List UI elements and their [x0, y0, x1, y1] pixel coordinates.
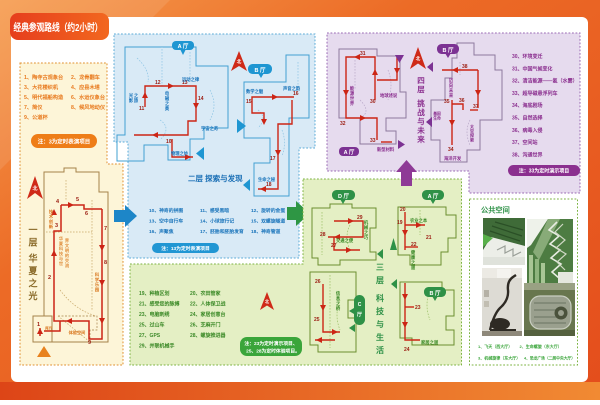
svg-text:三层科技与生活: 三层科技与生活 — [375, 263, 385, 355]
svg-text:25、过山车: 25、过山车 — [139, 322, 165, 329]
svg-text:12: 12 — [155, 80, 161, 86]
svg-text:24、家居创意台: 24、家居创意台 — [190, 311, 226, 318]
svg-text:16: 16 — [293, 91, 299, 97]
svg-text:26: 26 — [315, 279, 321, 285]
svg-text:13、空中自行车: 13、空中自行车 — [149, 218, 183, 225]
svg-text:12、旋转的金蛋: 12、旋转的金蛋 — [251, 207, 285, 214]
svg-text:11、感受黑暗: 11、感受黑暗 — [200, 207, 229, 214]
svg-text:14: 14 — [198, 96, 204, 102]
svg-text:1、陶寺古观象台: 1、陶寺古观象台 — [24, 73, 63, 81]
svg-text:17、胚胎和胚胎发育: 17、胚胎和胚胎发育 — [200, 228, 244, 235]
svg-text:2、龙骨翻车: 2、龙骨翻车 — [71, 73, 100, 81]
svg-text:8: 8 — [104, 260, 107, 266]
svg-text:1: 1 — [37, 322, 40, 328]
svg-text:四层挑战与未来: 四层挑战与未来 — [416, 76, 425, 144]
svg-text:4、应县木塔: 4、应县木塔 — [71, 83, 101, 91]
svg-text:公共空间: 公共空间 — [481, 206, 510, 215]
svg-text:物理之妙: 物理之妙 — [171, 150, 189, 157]
svg-text:34、海底剧场: 34、海底剧场 — [512, 102, 543, 109]
svg-text:20: 20 — [400, 207, 406, 213]
svg-text:33: 33 — [370, 138, 376, 144]
svg-text:声音之韵: 声音之韵 — [282, 85, 301, 92]
svg-text:2: 2 — [48, 275, 51, 281]
svg-text:A 厅: A 厅 — [428, 192, 439, 200]
svg-text:16、声聚焦: 16、声聚焦 — [149, 228, 174, 235]
svg-text:35: 35 — [444, 99, 450, 105]
svg-text:14、小球旅行记: 14、小球旅行记 — [200, 218, 234, 225]
svg-text:25: 25 — [314, 317, 320, 323]
svg-text:10、神奇的拼图: 10、神奇的拼图 — [149, 207, 183, 214]
svg-text:27: 27 — [331, 243, 337, 249]
svg-text:序厅: 序厅 — [44, 326, 53, 331]
svg-text:北: 北 — [237, 58, 242, 65]
svg-text:21: 21 — [426, 235, 432, 241]
svg-text:机械之巧: 机械之巧 — [364, 219, 369, 241]
svg-text:注：33为定时演示项目: 注：33为定时演示项目 — [519, 168, 570, 175]
svg-text:30: 30 — [370, 99, 376, 105]
svg-text:数学之魅: 数学之魅 — [246, 88, 264, 95]
svg-text:31、中国气候变化: 31、中国气候变化 — [512, 65, 553, 72]
svg-text:新型材料: 新型材料 — [377, 146, 395, 153]
svg-text:22、人体保卫战: 22、人体保卫战 — [190, 301, 226, 308]
svg-text:19、种植区划: 19、种植区划 — [139, 290, 170, 297]
svg-text:健康之道: 健康之道 — [411, 249, 416, 271]
svg-text:4、恐龙广场（二层中央大厅）: 4、恐龙广场（二层中央大厅） — [524, 355, 575, 361]
svg-text:B 厅: B 厅 — [442, 46, 454, 54]
svg-text:3、大花楼织机: 3、大花楼织机 — [24, 83, 59, 91]
svg-text:8、候风地动仪: 8、候风地动仪 — [71, 103, 106, 111]
svg-text:9: 9 — [88, 340, 91, 346]
svg-text:7: 7 — [104, 226, 107, 232]
svg-text:能源世界: 能源世界 — [350, 85, 355, 107]
svg-text:34: 34 — [448, 147, 454, 153]
svg-text:B 厅: B 厅 — [254, 66, 266, 74]
svg-text:17: 17 — [270, 156, 276, 162]
svg-text:注：13为定时表演项目: 注：13为定时表演项目 — [161, 245, 210, 252]
svg-text:B 厅: B 厅 — [429, 289, 441, 297]
svg-text:光影之旅: 光影之旅 — [128, 92, 139, 104]
svg-text:15、双螺旋隧道: 15、双螺旋隧道 — [251, 218, 285, 225]
svg-text:28、螺旋推进器: 28、螺旋推进器 — [190, 332, 227, 339]
svg-text:29: 29 — [357, 215, 363, 221]
svg-text:36: 36 — [459, 98, 465, 104]
svg-text:11: 11 — [139, 106, 145, 112]
svg-text:5、明代福船构造: 5、明代福船构造 — [24, 93, 64, 101]
svg-text:6、水运仪象台: 6、水运仪象台 — [71, 93, 105, 101]
svg-text:农业之本: 农业之本 — [409, 217, 428, 224]
svg-text:技术创新: 技术创新 — [48, 208, 54, 230]
svg-text:A 厅: A 厅 — [178, 42, 189, 50]
svg-text:宇宙之奇: 宇宙之奇 — [201, 125, 219, 132]
svg-text:二层 探索与发现: 二层 探索与发现 — [188, 173, 243, 183]
svg-text:注：3为定时表演项目: 注：3为定时表演项目 — [38, 138, 91, 146]
svg-text:注：23为定时演示项目、: 注：23为定时演示项目、 — [244, 340, 297, 347]
svg-text:27、GPS: 27、GPS — [139, 333, 161, 339]
svg-text:地球述说: 地球述说 — [380, 92, 398, 99]
svg-text:37、空间站: 37、空间站 — [512, 139, 538, 146]
svg-text:生命之秘: 生命之秘 — [258, 176, 276, 183]
svg-text:基因生命: 基因生命 — [432, 111, 441, 121]
svg-text:23、电脑刺绣: 23、电脑刺绣 — [139, 311, 171, 318]
svg-text:38: 38 — [462, 64, 468, 70]
svg-text:21、感受您的脉搏: 21、感受您的脉搏 — [139, 301, 180, 308]
svg-text:35、自然选择: 35、自然选择 — [512, 115, 544, 122]
svg-text:5: 5 — [76, 197, 79, 203]
svg-text:经典参观路线（约2小时）: 经典参观路线（约2小时） — [14, 21, 103, 34]
svg-text:3、机械旋律（东大厅）: 3、机械旋律（东大厅） — [478, 355, 520, 361]
svg-text:29、并联机械手: 29、并联机械手 — [139, 343, 175, 350]
svg-text:体验空间: 体验空间 — [69, 329, 86, 336]
svg-text:25、28为定时体验项目。: 25、28为定时体验项目。 — [246, 348, 300, 355]
svg-text:18: 18 — [266, 182, 272, 188]
svg-text:海洋开发: 海洋开发 — [444, 155, 462, 162]
svg-text:北: 北 — [32, 185, 37, 192]
svg-text:19: 19 — [397, 220, 403, 226]
svg-text:36、病毒入侵: 36、病毒入侵 — [512, 127, 543, 134]
svg-text:20、农田管家: 20、农田管家 — [190, 290, 222, 297]
svg-text:华夏科技与世: 华夏科技与世 — [58, 235, 64, 267]
svg-text:迈向未来: 迈向未来 — [448, 77, 454, 99]
svg-text:运动之律: 运动之律 — [182, 76, 200, 83]
svg-text:26、芝麻开门: 26、芝麻开门 — [190, 322, 221, 329]
svg-text:1、飞天（西大厅）: 1、飞天（西大厅） — [478, 343, 512, 349]
svg-text:A 厅: A 厅 — [344, 148, 355, 156]
svg-text:18、神奇管道: 18、神奇管道 — [251, 228, 281, 235]
svg-text:3: 3 — [55, 223, 58, 229]
svg-text:9、公道杯: 9、公道杯 — [24, 113, 48, 121]
svg-text:2、生命螺旋（东大厅）: 2、生命螺旋（东大厅） — [520, 343, 562, 349]
svg-text:D 厅: D 厅 — [338, 192, 350, 200]
svg-text:家居之道: 家居之道 — [421, 339, 439, 346]
svg-text:24: 24 — [404, 347, 410, 353]
svg-text:30、环境变迁: 30、环境变迁 — [512, 53, 543, 60]
svg-text:22: 22 — [411, 242, 417, 248]
svg-text:33、超导磁悬浮列车: 33、超导磁悬浮列车 — [512, 90, 558, 97]
svg-text:信息之桥: 信息之桥 — [336, 290, 341, 312]
svg-text:32: 32 — [340, 121, 346, 127]
svg-text:28: 28 — [320, 232, 326, 238]
svg-text:北: 北 — [416, 55, 421, 62]
svg-text:电磁之奥: 电磁之奥 — [165, 90, 170, 112]
svg-text:32、清洁能源——氢（水雾）: 32、清洁能源——氢（水雾） — [512, 78, 578, 85]
svg-text:38、沟通世界: 38、沟通世界 — [512, 151, 544, 158]
svg-text:23: 23 — [415, 305, 421, 311]
svg-text:10: 10 — [166, 139, 172, 145]
svg-text:7、简仪: 7、简仪 — [24, 103, 43, 111]
svg-text:6: 6 — [85, 211, 88, 217]
svg-text:15: 15 — [246, 99, 252, 105]
svg-text:31: 31 — [360, 51, 366, 57]
svg-text:交通之便: 交通之便 — [336, 237, 354, 244]
svg-text:37: 37 — [473, 104, 479, 110]
